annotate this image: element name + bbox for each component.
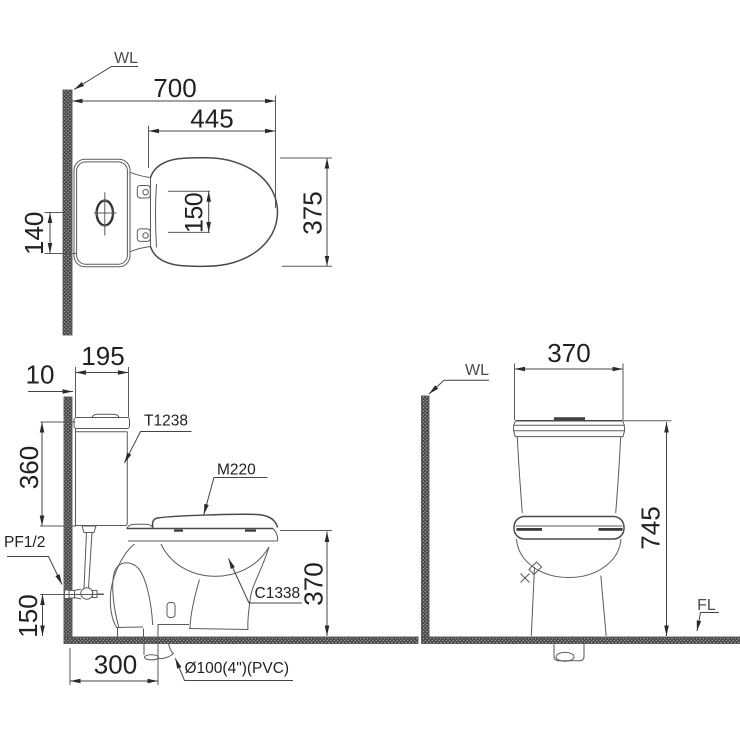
- svg-text:375: 375: [298, 191, 328, 234]
- svg-text:300: 300: [94, 650, 137, 680]
- svg-text:WL: WL: [465, 362, 489, 379]
- svg-text:370: 370: [547, 338, 590, 368]
- svg-text:445: 445: [190, 104, 233, 134]
- svg-text:FL: FL: [697, 597, 716, 614]
- svg-text:150: 150: [181, 193, 209, 233]
- svg-text:Ø100(4")(PVC): Ø100(4")(PVC): [185, 660, 290, 677]
- svg-text:PF1/2: PF1/2: [4, 534, 45, 551]
- svg-text:C1338: C1338: [255, 585, 301, 602]
- svg-text:745: 745: [636, 506, 666, 549]
- svg-text:700: 700: [153, 73, 196, 103]
- svg-text:140: 140: [19, 212, 49, 255]
- svg-text:150: 150: [13, 594, 43, 637]
- svg-text:10: 10: [26, 360, 55, 390]
- svg-text:195: 195: [81, 341, 124, 371]
- svg-text:370: 370: [299, 562, 329, 605]
- svg-text:M220: M220: [217, 462, 256, 479]
- svg-text:360: 360: [14, 446, 44, 489]
- svg-text:WL: WL: [114, 50, 138, 67]
- svg-text:T1238: T1238: [144, 413, 188, 430]
